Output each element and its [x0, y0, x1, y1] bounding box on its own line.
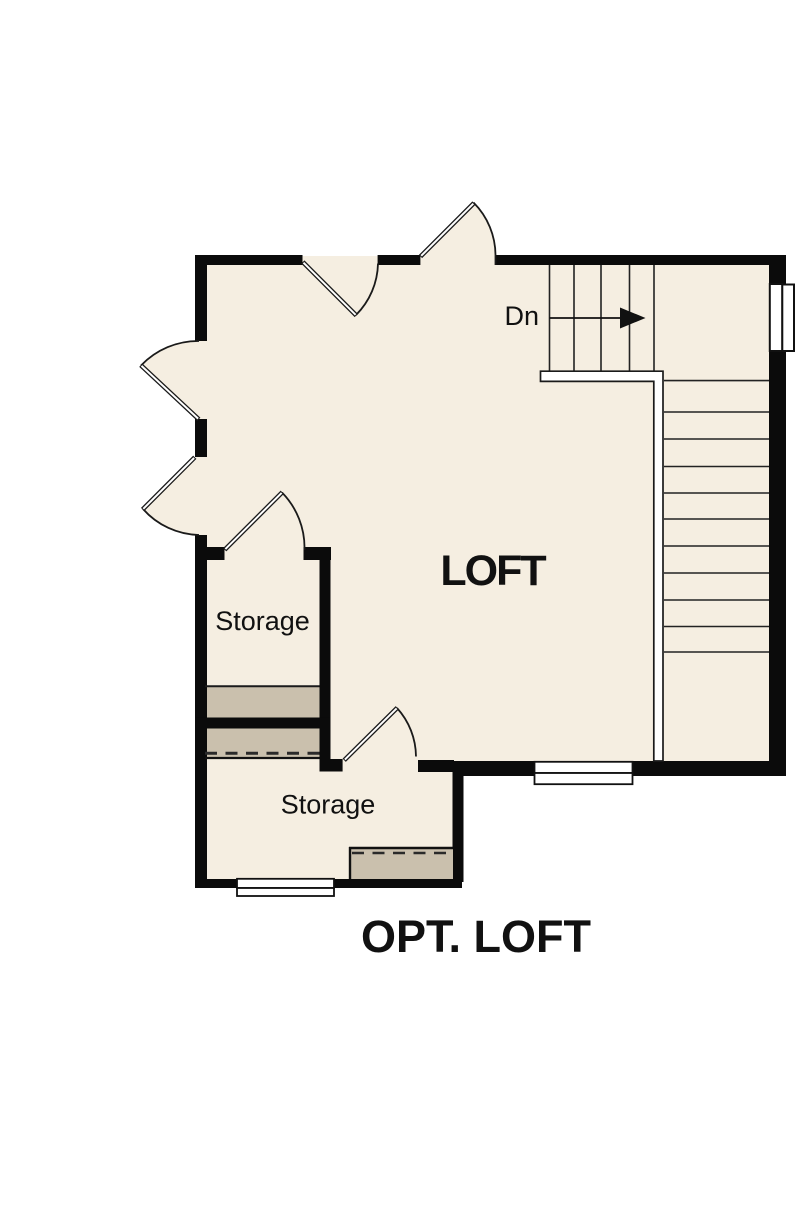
svg-text:OPT. LOFT: OPT. LOFT	[361, 911, 591, 962]
svg-text:Dn: Dn	[505, 301, 540, 331]
svg-text:Storage: Storage	[215, 606, 310, 636]
svg-text:LOFT: LOFT	[440, 547, 546, 595]
svg-text:Storage: Storage	[281, 790, 376, 820]
